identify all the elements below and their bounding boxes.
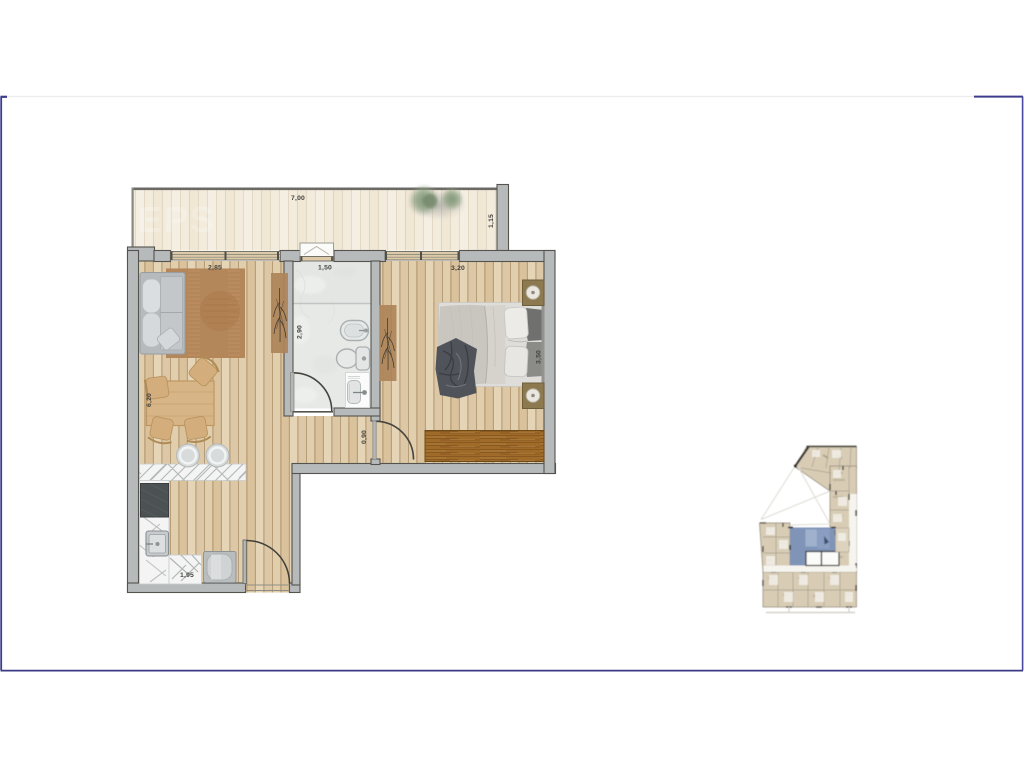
svg-text:3,20: 3,20: [451, 265, 465, 272]
svg-text:1,95: 1,95: [180, 572, 194, 579]
svg-text:2,85: 2,85: [208, 265, 222, 272]
svg-text:EPS: EPS: [138, 199, 216, 240]
svg-text:6,20: 6,20: [146, 393, 153, 407]
svg-text:1,50: 1,50: [318, 265, 332, 272]
svg-text:2,90: 2,90: [297, 325, 304, 339]
svg-text:0,90: 0,90: [361, 430, 368, 444]
svg-text:1,15: 1,15: [488, 214, 495, 228]
svg-text:7,00: 7,00: [291, 195, 305, 202]
svg-text:3,50: 3,50: [536, 350, 543, 364]
